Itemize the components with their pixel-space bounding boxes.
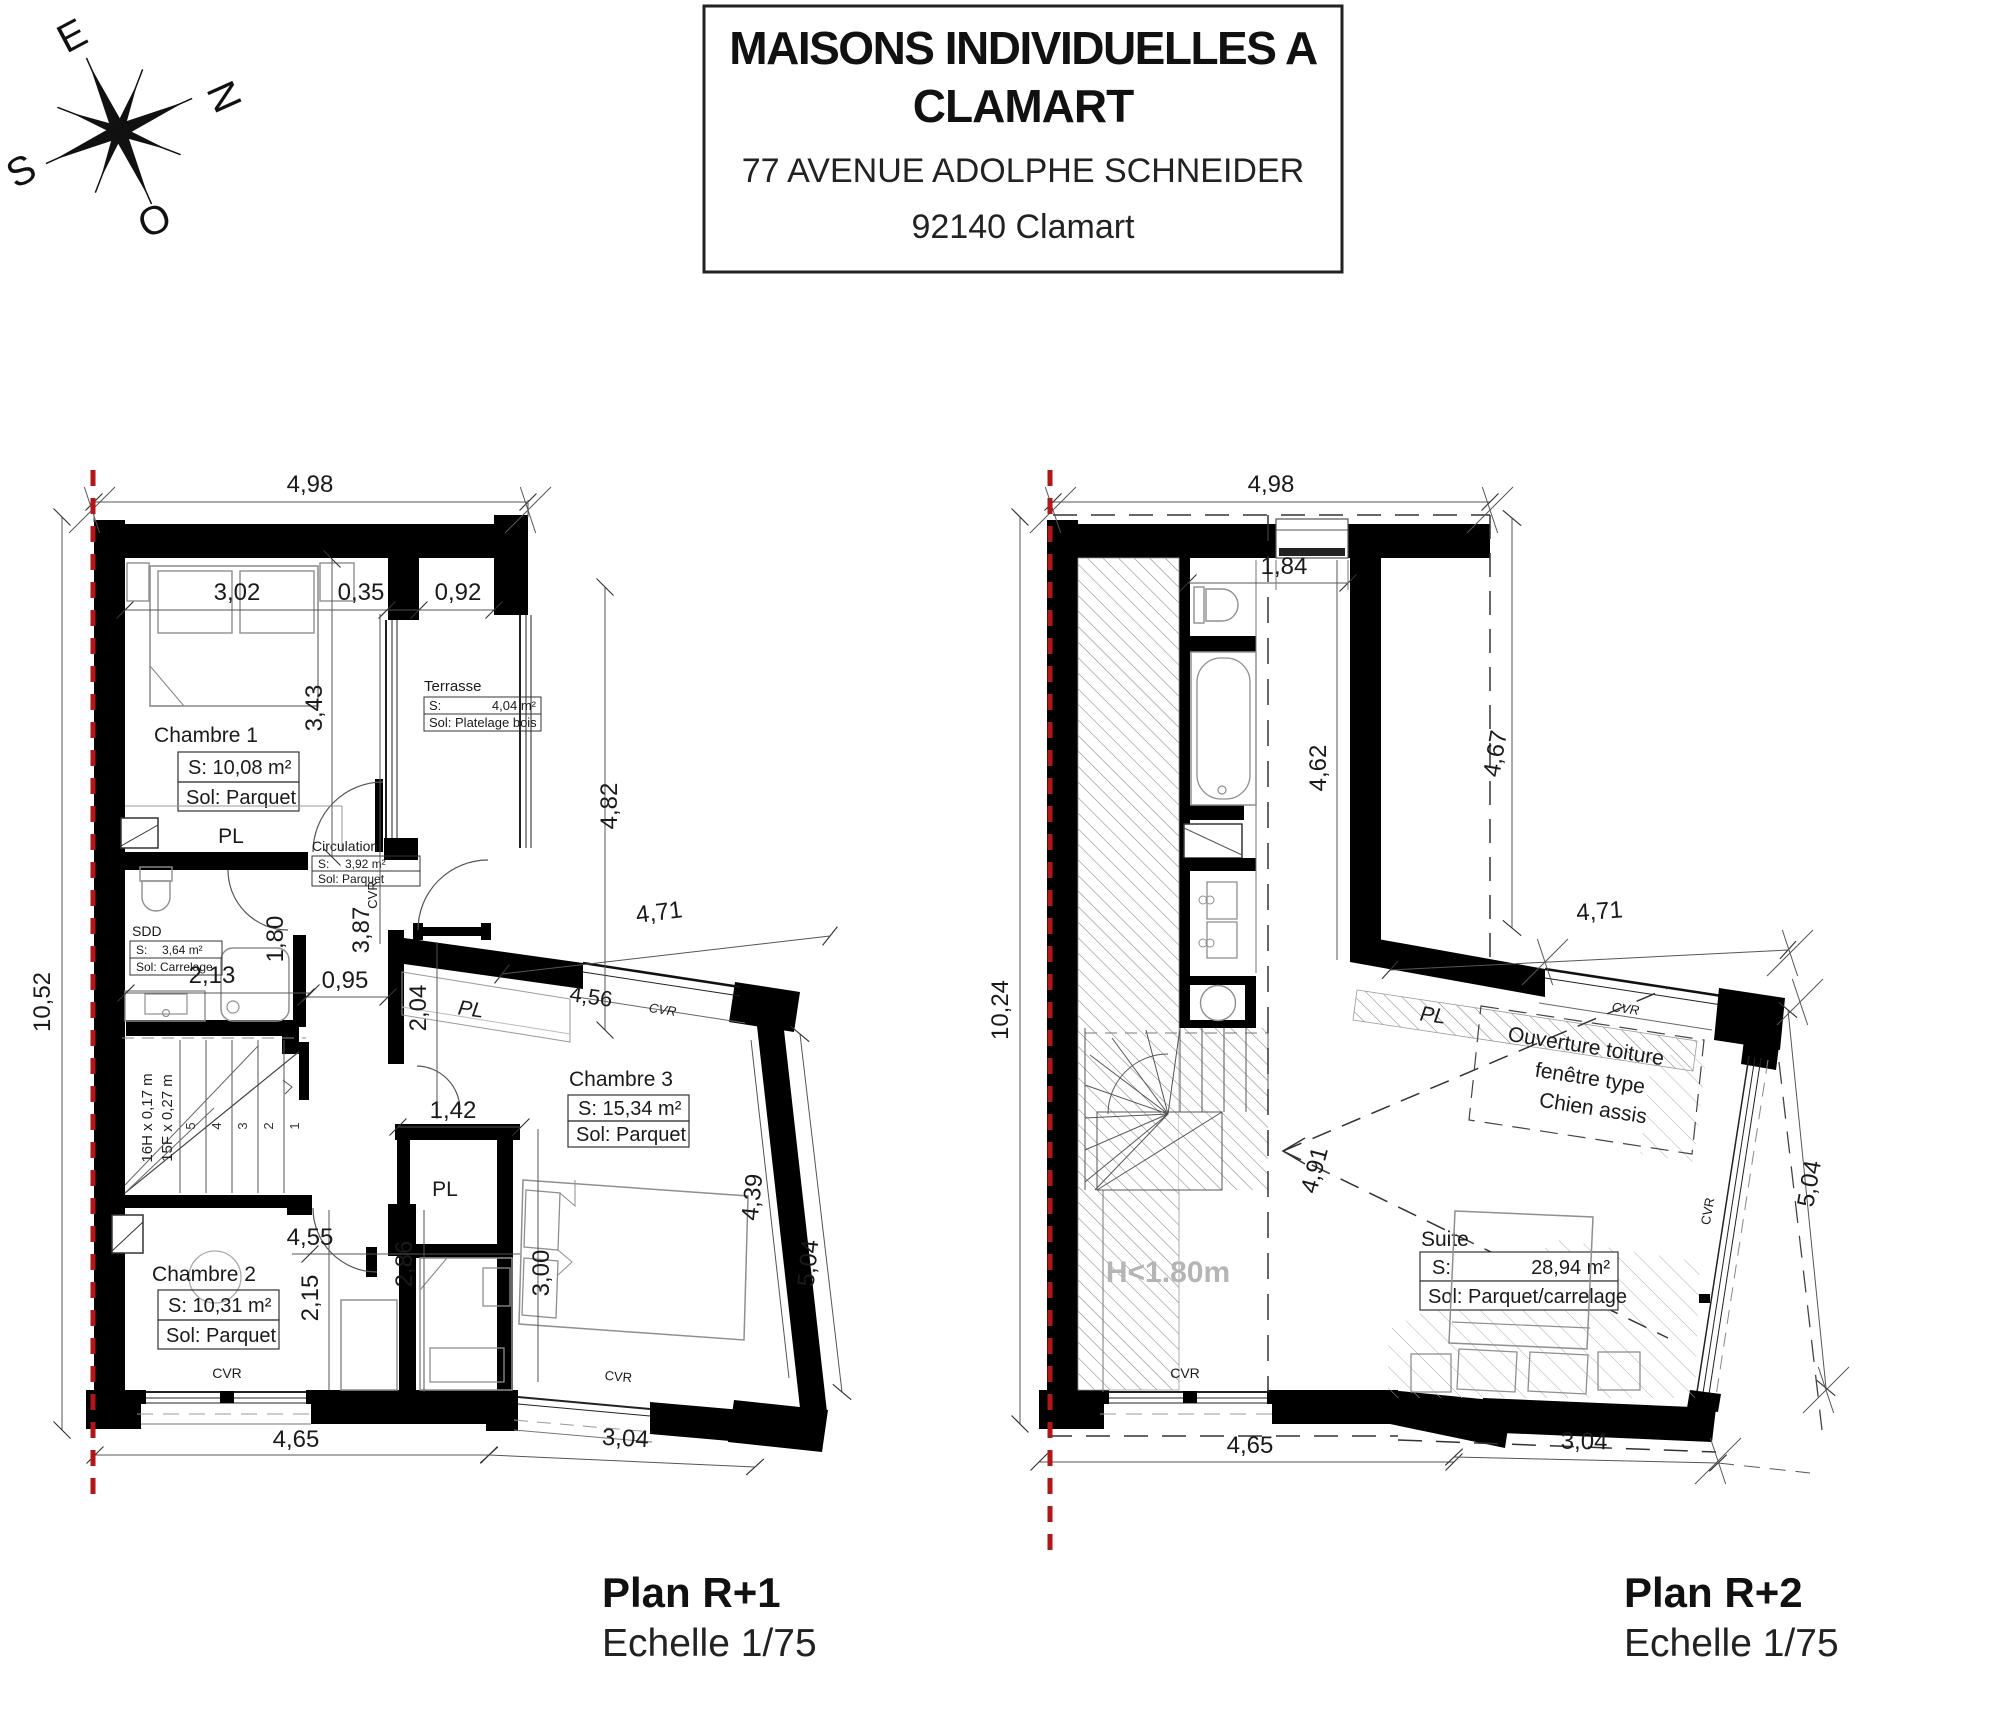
svg-text:3,00: 3,00	[528, 1250, 555, 1297]
svg-text:4,98: 4,98	[1248, 471, 1295, 498]
svg-text:Echelle 1/75: Echelle 1/75	[1624, 1622, 1839, 1665]
svg-text:5: 5	[183, 1122, 198, 1129]
svg-text:10,24: 10,24	[987, 980, 1014, 1040]
svg-text:4,55: 4,55	[287, 1224, 334, 1251]
svg-text:2,86: 2,86	[391, 1241, 418, 1288]
svg-text:4,67: 4,67	[1478, 728, 1513, 779]
svg-text:92140 Clamart: 92140 Clamart	[911, 208, 1135, 246]
svg-text:2,04: 2,04	[405, 985, 432, 1032]
svg-text:S:: S:	[429, 698, 441, 713]
svg-text:0,35: 0,35	[338, 579, 385, 606]
svg-text:2,15: 2,15	[297, 1275, 324, 1322]
svg-text:4: 4	[209, 1122, 224, 1129]
svg-text:3,64 m²: 3,64 m²	[162, 943, 203, 957]
svg-text:77 AVENUE ADOLPHE SCHNEIDER: 77 AVENUE ADOLPHE SCHNEIDER	[742, 152, 1304, 190]
svg-text:S: S	[0, 146, 43, 197]
svg-text:CVR: CVR	[604, 1368, 633, 1385]
svg-text:4,39: 4,39	[737, 1173, 769, 1222]
svg-text:3,02: 3,02	[214, 579, 261, 606]
svg-text:15F x 0,27 m: 15F x 0,27 m	[159, 1074, 176, 1162]
svg-text:4,56: 4,56	[568, 981, 614, 1012]
svg-text:2: 2	[261, 1122, 276, 1129]
svg-text:PL: PL	[432, 1178, 458, 1201]
svg-text:O: O	[132, 194, 178, 247]
svg-text:Terrasse: Terrasse	[424, 678, 482, 695]
svg-text:3: 3	[235, 1122, 250, 1129]
svg-text:N: N	[198, 75, 250, 119]
svg-text:2,13: 2,13	[189, 962, 236, 989]
svg-text:Circulation: Circulation	[312, 838, 378, 854]
svg-text:S:: S:	[318, 857, 329, 871]
svg-text:H<1.80m: H<1.80m	[1106, 1256, 1230, 1289]
svg-text:MAISONS INDIVIDUELLES A: MAISONS INDIVIDUELLES A	[729, 22, 1317, 74]
svg-text:4,04 m²: 4,04 m²	[492, 698, 537, 713]
svg-text:CLAMART: CLAMART	[913, 80, 1134, 132]
svg-text:0,92: 0,92	[435, 579, 482, 606]
svg-text:S: 15,34 m²: S: 15,34 m²	[578, 1098, 682, 1120]
svg-text:PL: PL	[218, 825, 244, 848]
svg-text:0,95: 0,95	[322, 967, 369, 994]
svg-text:4,91: 4,91	[1296, 1144, 1334, 1196]
svg-text:Chambre 1: Chambre 1	[154, 724, 258, 747]
svg-text:4,71: 4,71	[1575, 896, 1623, 926]
svg-text:CVR: CVR	[1170, 1365, 1200, 1381]
svg-text:4,65: 4,65	[1227, 1432, 1274, 1459]
svg-text:S:: S:	[1432, 1257, 1451, 1279]
svg-text:4,82: 4,82	[596, 783, 623, 830]
svg-text:E: E	[50, 10, 94, 61]
svg-text:1,42: 1,42	[430, 1097, 477, 1124]
svg-text:4,62: 4,62	[1305, 745, 1332, 792]
svg-text:1,80: 1,80	[262, 916, 289, 963]
svg-text:SDD: SDD	[132, 923, 162, 939]
svg-text:10,52: 10,52	[29, 972, 56, 1032]
svg-text:Sol: Parquet/carrelage: Sol: Parquet/carrelage	[1428, 1286, 1627, 1308]
svg-text:S: 10,31 m²: S: 10,31 m²	[168, 1295, 272, 1317]
svg-text:3,87: 3,87	[348, 907, 375, 954]
svg-text:CVR: CVR	[1698, 1196, 1718, 1226]
svg-text:1,84: 1,84	[1261, 553, 1308, 580]
svg-text:PL: PL	[457, 996, 486, 1022]
svg-text:Sol: Parquet: Sol: Parquet	[166, 1325, 277, 1347]
svg-text:3,43: 3,43	[301, 685, 328, 732]
svg-text:S:: S:	[136, 943, 147, 957]
svg-text:5,04: 5,04	[1792, 1158, 1827, 1209]
svg-text:PL: PL	[1419, 1002, 1448, 1028]
svg-text:Plan R+2: Plan R+2	[1624, 1569, 1803, 1616]
svg-text:4,65: 4,65	[273, 1426, 320, 1453]
svg-text:1: 1	[287, 1122, 302, 1129]
svg-text:CVR: CVR	[365, 881, 380, 908]
svg-text:3,04: 3,04	[1561, 1428, 1608, 1456]
svg-text:Sol: Platelage bois: Sol: Platelage bois	[429, 715, 537, 730]
svg-text:16H x 0,17 m: 16H x 0,17 m	[139, 1073, 156, 1162]
svg-text:5,04: 5,04	[793, 1239, 825, 1288]
svg-text:3,04: 3,04	[601, 1424, 649, 1453]
svg-text:Chambre 2: Chambre 2	[152, 1263, 256, 1286]
svg-text:28,94 m²: 28,94 m²	[1531, 1257, 1610, 1279]
svg-text:Suite: Suite	[1421, 1228, 1469, 1251]
svg-text:CVR: CVR	[212, 1365, 242, 1381]
svg-text:Plan R+1: Plan R+1	[602, 1569, 781, 1616]
svg-text:Chambre 3: Chambre 3	[569, 1068, 673, 1091]
svg-text:4,71: 4,71	[634, 896, 684, 928]
svg-text:Echelle 1/75: Echelle 1/75	[602, 1622, 817, 1665]
svg-text:Sol: Parquet: Sol: Parquet	[576, 1124, 687, 1146]
svg-text:S: 10,08 m²: S: 10,08 m²	[188, 757, 292, 779]
svg-text:CVR: CVR	[648, 1000, 677, 1019]
svg-text:4,98: 4,98	[287, 471, 334, 498]
